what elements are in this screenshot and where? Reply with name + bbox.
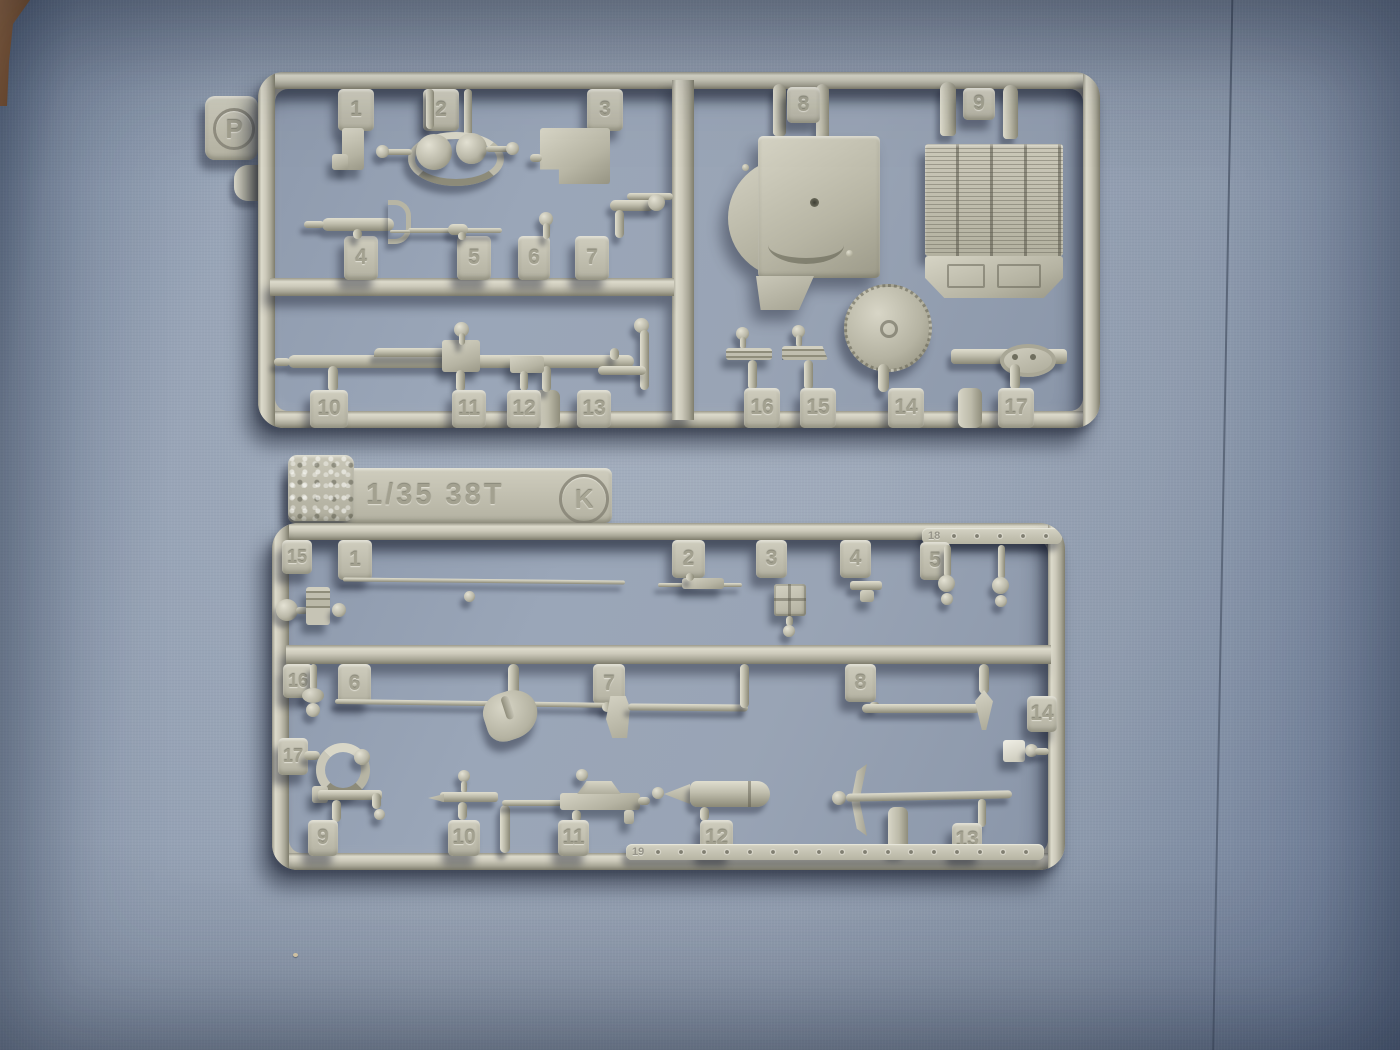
part-machine-gun-handle — [388, 200, 411, 244]
part-radiator-detail — [947, 264, 985, 288]
part-stowage-box-nub — [530, 154, 542, 162]
part-crowbar — [862, 704, 980, 713]
part-number-tag: 10 — [448, 820, 480, 856]
part-mg-body — [560, 793, 640, 810]
part-tool-bracket-pin — [372, 793, 381, 809]
part-radiator-detail — [997, 264, 1041, 288]
part-muffler-body — [690, 781, 770, 807]
sprue-stem — [740, 664, 749, 708]
tag-number: 13 — [582, 397, 605, 421]
part-number-tag: 3 — [587, 89, 623, 131]
part-number-tag: 3 — [756, 540, 787, 578]
part-number-tag: 6 — [338, 664, 371, 704]
part-rivet-strip: 19 — [626, 844, 1044, 860]
part-pulley-axle-ball-right — [506, 142, 519, 155]
sprue-stem — [1010, 364, 1020, 390]
sprue-stem — [353, 229, 362, 239]
tag-number: 14 — [894, 396, 917, 420]
part-hatch-plate — [774, 584, 806, 616]
part-number-tag: 10 — [310, 390, 348, 428]
part-idler-wheel — [844, 284, 932, 372]
part-pulley-axle-left — [386, 149, 412, 155]
part-disc — [302, 688, 324, 703]
part-tow-ring-ball — [354, 749, 370, 765]
sprue-stem — [998, 545, 1005, 579]
part-number-tag: 8 — [787, 87, 820, 123]
part-shovel-socket — [500, 695, 515, 720]
part-shackle-hole — [1012, 354, 1018, 360]
tag-number: 5 — [929, 549, 941, 573]
sprue-k-letter: K — [575, 484, 594, 515]
part-number-tag: 11 — [558, 820, 589, 856]
tag-number: 10 — [317, 397, 340, 421]
part-gun-barrel-needle — [390, 230, 410, 233]
sprue-elbow — [500, 805, 510, 853]
part-number-tag: 16 — [744, 388, 780, 428]
part-final-drive-housing — [728, 136, 880, 284]
part-number-tag: 17 — [998, 388, 1034, 428]
tag-number: 6 — [528, 246, 540, 270]
sprue-stem — [426, 89, 434, 129]
part-number-tag: 11 — [452, 390, 486, 428]
sprue-rail-left — [258, 72, 275, 428]
part-rivet — [742, 164, 749, 171]
part-mg-barrel — [502, 800, 564, 806]
sprue-stem — [328, 366, 338, 392]
sprue-pin — [1003, 85, 1018, 139]
part-pickaxe-ball — [832, 791, 846, 805]
part-number-tag: 15 — [800, 388, 836, 428]
part-number-tag: 4 — [840, 540, 871, 578]
part-rod-vertical — [640, 330, 649, 390]
part-number-tag: 4 — [344, 236, 378, 280]
part-hatch-pin-ball — [783, 625, 795, 637]
tag-number: 2 — [435, 98, 447, 122]
part-number-tag: 7 — [575, 236, 609, 280]
part-mg-grip — [624, 810, 634, 824]
sprue-stem — [700, 807, 709, 821]
tag-number: 4 — [850, 547, 862, 571]
part-long-gun-end — [610, 348, 619, 360]
sprue-k-letter-circle: K — [559, 474, 609, 524]
part-pulley-axle-ball-left — [376, 145, 389, 158]
part-tool-bracket-bar — [440, 792, 498, 802]
part-ball-lever-shaft — [543, 223, 550, 239]
tag-number: 14 — [1030, 702, 1053, 726]
part-number-tag: 9 — [308, 820, 338, 856]
paper-seam-line — [1212, 0, 1233, 1050]
part-radiator-grille-panel — [925, 144, 1063, 298]
part-hinge-ball — [332, 603, 346, 617]
sprue-k-logo-square — [288, 455, 354, 521]
part-shackle-hole — [1030, 354, 1036, 360]
tag-number: 6 — [349, 672, 361, 696]
part-periscope-ball — [992, 577, 1009, 594]
strip-number: 19 — [632, 846, 644, 858]
tag-number: 12 — [512, 397, 535, 421]
part-t-bracket-tab — [860, 590, 874, 602]
sprue-stem — [310, 664, 317, 690]
sprue-pin — [940, 82, 956, 136]
sprue-stem — [979, 664, 989, 694]
part-long-gun-muzzle — [274, 358, 290, 366]
sprue-stub — [234, 165, 260, 201]
tag-number: 2 — [683, 547, 695, 571]
sprue-stem — [748, 360, 757, 390]
part-hatch-groove — [774, 598, 806, 601]
part-idler-hub — [880, 320, 898, 338]
strip-number: 18 — [928, 530, 940, 542]
part-number-tag: 15 — [282, 540, 312, 574]
tag-number: 7 — [603, 672, 615, 696]
sprue-k-title: 1/35 38T — [366, 479, 504, 512]
part-pulley-wheel-right — [456, 133, 487, 164]
sprue-rail-middle — [270, 278, 674, 296]
sprue-stem — [332, 800, 341, 822]
part-periscope-ball — [995, 595, 1007, 607]
tag-number: 16 — [750, 396, 773, 420]
part-number-tag: 1 — [338, 540, 372, 580]
part-t-bracket — [850, 581, 882, 590]
rivet-dots — [648, 844, 1044, 860]
tag-number: 11 — [458, 397, 480, 421]
part-disc-ball — [306, 703, 320, 717]
sprue-stem — [458, 802, 467, 820]
tag-number: 3 — [766, 547, 778, 571]
part-pulley-wheel-left — [416, 134, 452, 170]
part-final-drive-hole — [810, 198, 819, 207]
photo-scene: P 1 2 3 4 5 6 7 — [0, 0, 1400, 1050]
tag-number: 5 — [468, 246, 480, 270]
part-number-tag: 13 — [577, 390, 611, 428]
sprue-rail-right — [1083, 72, 1100, 428]
sprue-p-frame: 1 2 3 4 5 6 7 — [258, 72, 1100, 428]
tag-number: 8 — [855, 671, 867, 695]
tag-number: 17 — [283, 746, 303, 767]
part-axe-handle — [628, 703, 748, 711]
sprue-stem — [456, 370, 465, 392]
wood-table-edge — [0, 0, 30, 106]
part-box-pin — [459, 333, 465, 345]
part-hinge-ball — [276, 599, 298, 621]
part-periscope-ball — [941, 593, 953, 605]
part-muffler-tip — [652, 787, 664, 799]
tag-number: 17 — [1004, 396, 1027, 420]
part-number-tag: 5 — [457, 236, 491, 280]
part-small-plate — [510, 356, 544, 373]
part-hinge-block — [306, 587, 330, 625]
part-crank-ball — [648, 194, 665, 211]
sprue-rail-divider — [672, 80, 694, 420]
tag-number: 1 — [349, 548, 361, 572]
sprue-stem — [520, 371, 528, 391]
tag-number: 3 — [599, 98, 611, 122]
tag-number: 1 — [350, 98, 362, 122]
part-radiator-grille — [925, 144, 1063, 256]
part-leaf-spring — [782, 346, 828, 360]
sprue-stem — [458, 232, 466, 240]
part-tool-bracket-ball — [374, 809, 385, 820]
sprue-p-letter: P — [225, 114, 242, 145]
tag-number: 16 — [288, 671, 308, 692]
part-periscope-ball — [938, 575, 955, 592]
part-number-tag: 6 — [518, 236, 550, 280]
tag-number: 15 — [806, 396, 829, 420]
sprue-stem — [796, 335, 802, 347]
part-mg-stock — [638, 797, 650, 805]
part-crank-shaft — [615, 210, 624, 238]
rivet-dots — [944, 528, 1062, 544]
sprue-stem — [686, 573, 694, 581]
tag-number: 9 — [973, 92, 985, 116]
sprue-k-frame: 18 15 1 2 3 4 5 16 — [272, 523, 1065, 870]
part-radiator-base — [925, 256, 1063, 298]
sprue-stem — [878, 364, 889, 392]
sprue-stem — [804, 360, 813, 390]
sprue-rail-middle — [286, 645, 1051, 664]
sprue-stem — [944, 545, 951, 577]
part-mg-knob — [576, 769, 588, 781]
part-shackle-oval — [1000, 344, 1056, 377]
part-number-tag: 8 — [845, 664, 876, 702]
sprue-stem — [1035, 748, 1049, 755]
part-number-tag: 14 — [1027, 696, 1057, 732]
part-number-tag: 12 — [507, 390, 541, 428]
tag-number: 4 — [355, 246, 367, 270]
part-tow-rod-ball — [464, 591, 475, 602]
sprue-post — [958, 388, 982, 428]
part-number-tag: 1 — [338, 89, 374, 131]
part-number-tag: 9 — [963, 88, 995, 120]
tag-number: 8 — [798, 93, 810, 117]
part-final-drive-slot — [768, 226, 844, 264]
sprue-p-letter-circle: P — [213, 108, 255, 150]
tag-number: 11 — [562, 826, 584, 850]
part-rod-foot — [598, 366, 646, 375]
part-angle-bracket-foot — [332, 154, 348, 170]
dust-speck — [293, 953, 298, 957]
tag-number: 9 — [317, 826, 329, 850]
part-number-tag: 14 — [888, 388, 924, 428]
part-rivet — [846, 250, 853, 257]
part-muffler-band — [748, 781, 751, 807]
part-machine-gun-muzzle — [304, 221, 324, 228]
tag-number: 10 — [452, 826, 475, 850]
tag-number: 15 — [287, 547, 307, 568]
sprue-p-letter-tab: P — [205, 96, 258, 160]
part-clip — [1003, 740, 1025, 762]
sprue-pin — [773, 84, 786, 136]
tag-number: 7 — [586, 246, 598, 270]
part-leaf-spring — [726, 348, 772, 360]
